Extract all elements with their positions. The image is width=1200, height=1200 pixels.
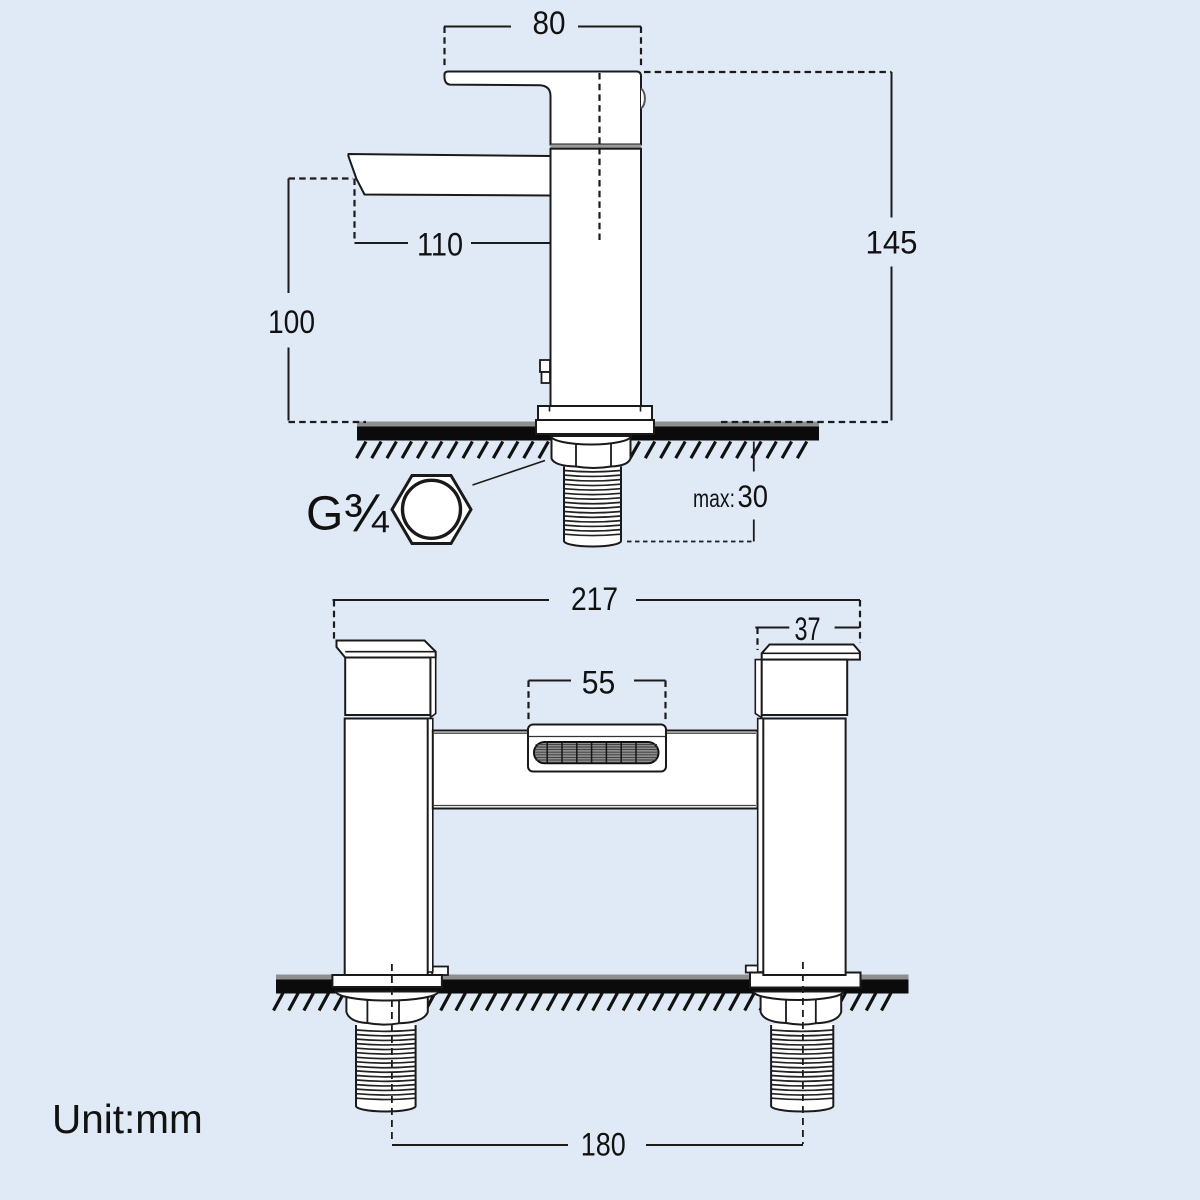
svg-text:100: 100 (268, 304, 315, 340)
svg-text:Unit:mm: Unit:mm (52, 1096, 203, 1142)
svg-text:G¾: G¾ (306, 484, 389, 544)
svg-text:145: 145 (866, 225, 918, 261)
svg-text:55: 55 (582, 665, 616, 701)
svg-text:30: 30 (738, 478, 769, 514)
svg-text:max:: max: (693, 485, 735, 513)
svg-text:37: 37 (795, 611, 821, 647)
svg-text:110: 110 (417, 227, 463, 263)
svg-text:80: 80 (533, 5, 566, 41)
svg-text:217: 217 (571, 581, 618, 617)
svg-text:180: 180 (581, 1127, 626, 1163)
